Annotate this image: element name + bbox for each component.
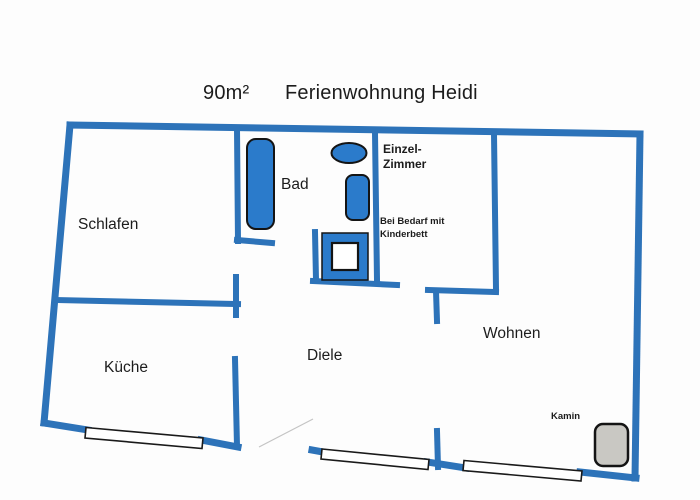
wall-bottom-seg4 xyxy=(427,462,466,468)
wall-shower-west xyxy=(315,232,316,280)
fireplace-label-kamin: Kamin xyxy=(551,411,580,422)
room-label-einzelzimmer-line1: Einzel- xyxy=(383,142,422,156)
interior-walls xyxy=(55,129,496,467)
room-label-wohnen: Wohnen xyxy=(483,325,540,342)
entrance-door-swing-line xyxy=(259,419,313,447)
windows xyxy=(85,428,582,482)
einzelzimmer-note-line1: Bei Bedarf mit xyxy=(380,216,445,227)
wall-bottom-seg5 xyxy=(580,472,636,478)
wall-bottom-seg1 xyxy=(44,423,88,430)
wall-bad-west xyxy=(237,129,238,241)
wall-bad-south-stub xyxy=(237,240,272,243)
einzelzimmer-note-line2: Kinderbett xyxy=(380,229,428,240)
wall-bottom-seg2 xyxy=(201,440,238,447)
fireplace-icon xyxy=(595,424,628,466)
wall-schlafen-kueche xyxy=(55,300,238,304)
apartment-area-label: 90m² xyxy=(203,82,250,104)
wall-kueche-diele xyxy=(235,359,237,446)
wall-wohnen-post-top xyxy=(436,291,437,321)
living-room-window xyxy=(463,461,582,482)
room-label-diele: Diele xyxy=(307,347,342,364)
apartment-name-label: Ferienwohnung Heidi xyxy=(285,82,478,104)
wall-einzelzimmer-wohnen xyxy=(494,134,496,289)
room-label-einzelzimmer-line2: Zimmer xyxy=(383,157,427,171)
floorplan-page: 90m² Ferienwohnung Heidi xyxy=(0,0,700,500)
floorplan-drawing: 90m² Ferienwohnung Heidi xyxy=(0,0,700,500)
wc-icon xyxy=(346,175,369,220)
room-label-bad: Bad xyxy=(281,176,309,193)
room-label-kueche: Küche xyxy=(104,359,148,376)
wall-shower-south xyxy=(313,281,397,285)
wall-top xyxy=(70,125,640,134)
bathtub-icon xyxy=(247,139,274,229)
wall-bad-einzelzimmer xyxy=(375,133,377,280)
wall-left xyxy=(44,125,70,423)
shower-icon-inner xyxy=(332,243,358,270)
wall-right xyxy=(635,134,640,478)
kitchen-window xyxy=(85,428,203,449)
room-label-schlafen: Schlafen xyxy=(78,216,138,233)
wall-wohnen-post-bottom xyxy=(437,431,438,467)
washbasin-icon xyxy=(332,143,367,163)
hall-window xyxy=(321,449,429,470)
